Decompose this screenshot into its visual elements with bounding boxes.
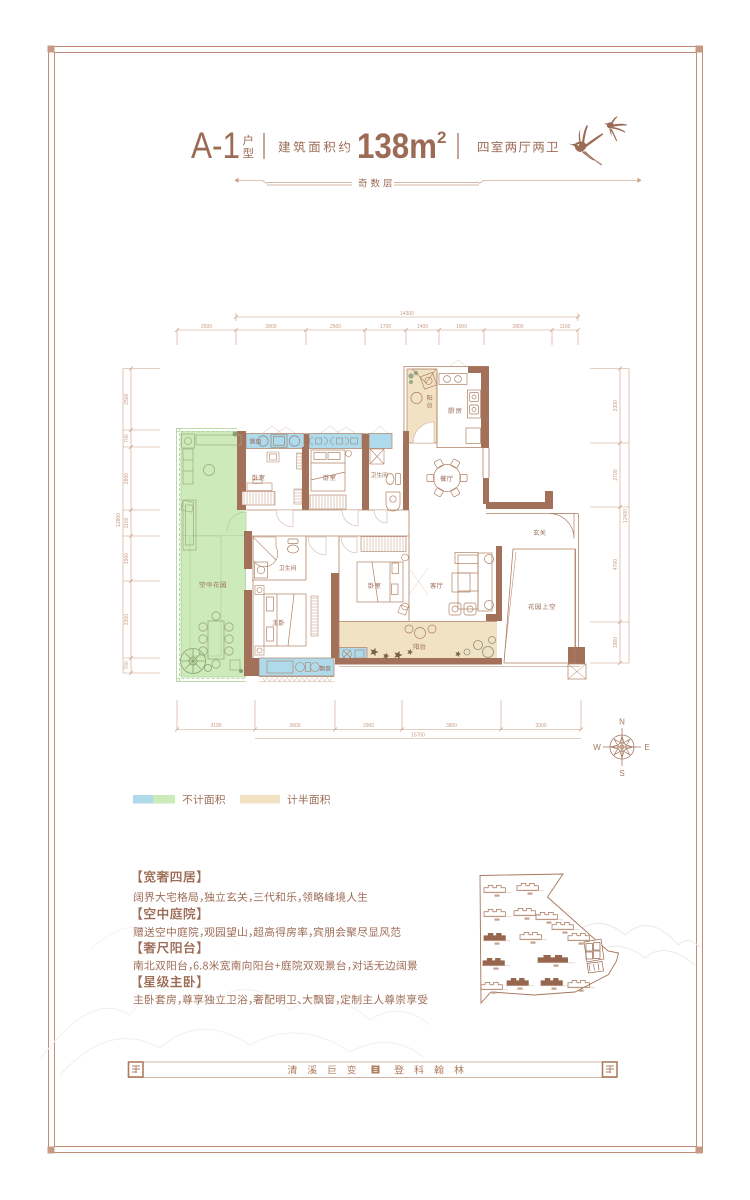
svg-text:E: E bbox=[644, 743, 649, 752]
svg-text:S: S bbox=[619, 769, 624, 778]
svg-text:W: W bbox=[593, 743, 601, 752]
svg-text:N: N bbox=[619, 718, 625, 727]
